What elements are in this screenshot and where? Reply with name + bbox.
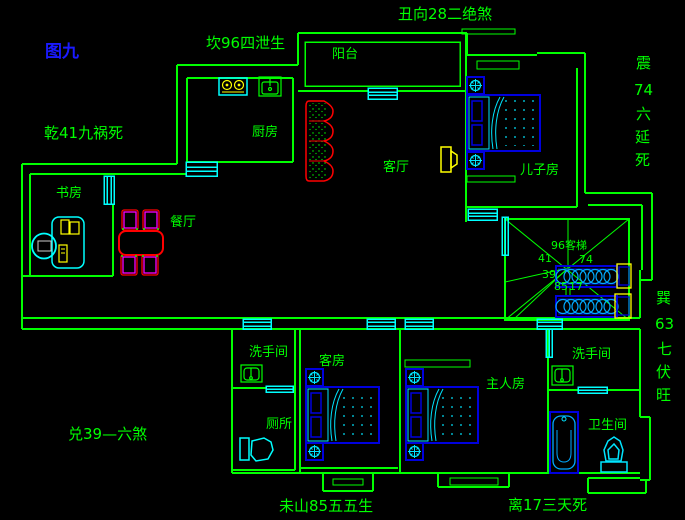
dining-chair [122, 210, 138, 230]
nightstand [467, 152, 484, 169]
room-label-guest: 客房 [319, 355, 345, 368]
nightstand [406, 443, 423, 460]
window-hall-2 [367, 319, 395, 329]
figure-title: 图九 [45, 44, 79, 61]
stairwell-number-85: 85 [554, 281, 568, 292]
window-hall-1 [243, 319, 271, 329]
nightstand [306, 443, 323, 460]
sofa [306, 101, 333, 181]
outer-walls [22, 33, 652, 493]
room-label-dining: 餐厅 [170, 216, 196, 229]
bathtub [550, 412, 578, 473]
stairwell-label: 96客梯 [551, 240, 587, 251]
room-label-washroom1: 洗手间 [249, 346, 288, 359]
fengshui-label-east: 震 [636, 56, 651, 71]
fengshui-label-southeast: 63 [655, 317, 674, 332]
room-label-study: 书房 [56, 187, 82, 200]
fengshui-label-north: 坎96四泄生 [206, 36, 285, 51]
room-label-balcony: 阳台 [332, 48, 358, 61]
door-washroom2 [578, 387, 607, 393]
window-son-room [468, 209, 497, 220]
door-study [104, 176, 114, 204]
room-label-washroom2: 洗手间 [572, 348, 611, 361]
wardrobe-row-2 [556, 294, 631, 318]
washroom1-sink [241, 365, 262, 382]
room-label-kitchen: 厨房 [252, 126, 278, 139]
study-desk [52, 217, 84, 268]
room-label-bathroom: 卫生间 [588, 419, 627, 432]
bed-guest [306, 387, 379, 443]
fengshui-label-southeast: 旺 [656, 388, 671, 403]
nightstand [406, 369, 423, 386]
door-master-washroom [546, 329, 552, 357]
dining-chairs [121, 210, 159, 275]
fengshui-label-west: 兑39—六煞 [68, 427, 147, 442]
bed-son [467, 95, 540, 151]
fengshui-label-mountain: 未山85五五生 [279, 499, 373, 514]
toilet-fixture [240, 438, 273, 461]
stairwell-number-39: 39 [542, 269, 556, 280]
room-label-son: 儿子房 [520, 164, 559, 177]
dining-chair [143, 210, 159, 230]
window-kitchen [186, 162, 217, 176]
dining-chair [142, 255, 158, 275]
bed-master [406, 387, 478, 443]
stairwell-number-74: 74 [579, 254, 593, 265]
dining-chair [121, 255, 137, 275]
fengshui-label-southeast: 巽 [656, 291, 671, 306]
stairwell-number-17: 17 [569, 281, 583, 292]
fengshui-label-facing: 丑向28二绝煞 [398, 7, 492, 22]
door-toilet [266, 386, 293, 392]
window-balcony [368, 88, 397, 99]
kitchen-sink [259, 77, 281, 96]
tv [441, 147, 457, 172]
washroom2-sink [552, 366, 573, 385]
fengshui-label-east: 六 [636, 107, 651, 122]
room-label-master: 主人房 [486, 378, 525, 391]
fengshui-label-east: 死 [635, 153, 650, 168]
fengshui-label-south: 离17三天死 [508, 498, 587, 513]
room-label-toilet: 厕所 [266, 418, 292, 431]
fengshui-label-southeast: 伏 [656, 365, 671, 380]
fengshui-label-southeast: 七 [657, 342, 672, 357]
nightstand [306, 369, 323, 386]
room-label-living: 客厅 [383, 161, 409, 174]
bathroom-toilet [601, 437, 627, 472]
stairwell-number-41: 41 [538, 253, 552, 264]
stove [219, 78, 247, 95]
door-stairwell [502, 217, 508, 255]
fengshui-label-east: 74 [634, 83, 653, 98]
nightstand [467, 77, 484, 94]
dining-table [119, 231, 163, 255]
fengshui-label-east: 延 [635, 130, 650, 145]
fengshui-label-northwest: 乾41九祸死 [44, 126, 123, 141]
floorplan-page: 图九 坎96四泄生 丑向28二绝煞 乾41九祸死 兑39—六煞 未山85五五生 … [0, 0, 685, 520]
window-hall-3 [405, 319, 433, 329]
